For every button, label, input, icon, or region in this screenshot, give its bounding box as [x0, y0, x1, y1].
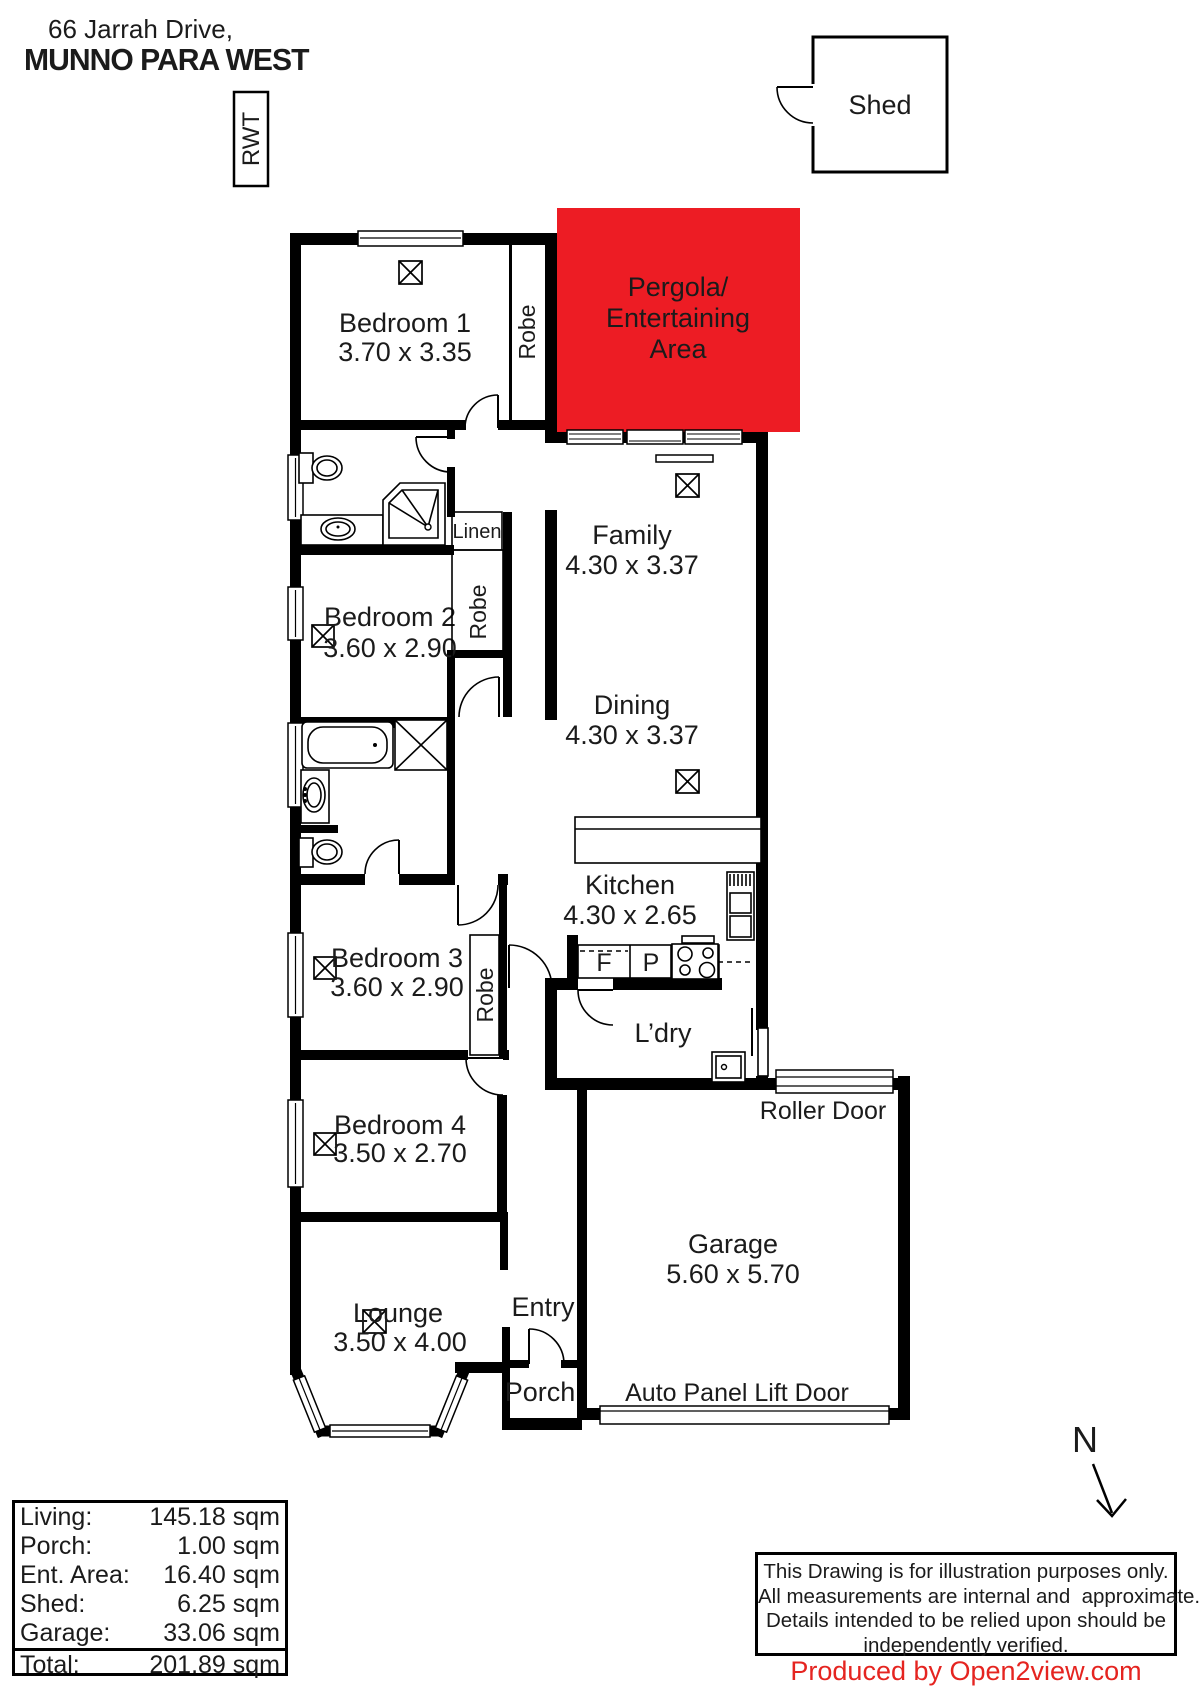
fridge-pantry-unit [727, 872, 754, 940]
laundry-label: L’dry [634, 1018, 692, 1048]
room-label-bedroom-2: Bedroom 2 [324, 602, 456, 632]
robe-label-bed2: Robe [465, 585, 491, 640]
room-label-bedroom-4: Bedroom 4 [334, 1110, 466, 1140]
robe-label-bed3: Robe [472, 968, 498, 1023]
porch-label: Porch [505, 1377, 576, 1407]
linen-label: Linen [453, 521, 502, 543]
area-label: Living: [20, 1503, 92, 1532]
producer-credit: Produced by Open2view.com [755, 1656, 1177, 1687]
pergola-label-1: Pergola/ [628, 272, 729, 302]
ensuite-fixtures [299, 453, 445, 545]
bathroom-fixtures [301, 720, 447, 823]
bedroom4-door [466, 1058, 503, 1095]
disclaimer-box: This Drawing is for illustration purpose… [755, 1552, 1177, 1656]
room-label-family: Family [592, 520, 672, 550]
toilet-cistern [299, 838, 313, 867]
room-dims-bedroom-3: 3.60 x 2.90 [330, 972, 464, 1002]
disclaimer-line: independently verified. [758, 1634, 1174, 1659]
north-arrow: N [1072, 1419, 1126, 1516]
area-value: 6.25 sqm [177, 1590, 280, 1619]
bedroom3-door [458, 885, 498, 925]
table-row: Porch: 1.00 sqm [15, 1532, 285, 1561]
roller-door-label: Roller Door [760, 1097, 886, 1125]
area-value: 33.06 sqm [163, 1619, 280, 1648]
shed-label: Shed [848, 90, 911, 120]
kitchen-bench [575, 817, 761, 863]
fridge-label: F [596, 949, 611, 977]
pantry-label: P [643, 949, 660, 977]
disclaimer-line: Details intended to be relied upon shoul… [758, 1609, 1174, 1634]
area-label: Total: [20, 1651, 80, 1680]
table-row: Ent. Area: 16.40 sqm [15, 1561, 285, 1590]
fan-icon [399, 261, 422, 284]
auto-panel-lift-door [600, 1406, 889, 1424]
floorplan-page: 66 Jarrah Drive, MUNNO PARA WEST Pergola… [0, 0, 1200, 1697]
disclaimer-line: This Drawing is for illustration purpose… [758, 1560, 1174, 1585]
wc-door [365, 840, 399, 874]
area-value: 1.00 sqm [177, 1532, 280, 1561]
disclaimer-line: All measurements are internal and approx… [758, 1585, 1174, 1610]
robe-label-bed1: Robe [514, 305, 540, 360]
pergola-label-2: Entertaining [606, 303, 750, 333]
room-dims-bedroom-1: 3.70 x 3.35 [338, 337, 472, 367]
entry-door [529, 1329, 564, 1364]
sliding-door-leaf [656, 455, 713, 462]
ensuite-door [416, 437, 451, 472]
pergola-label-3: Area [649, 334, 707, 364]
fan-icon [676, 770, 699, 793]
laundry-door [578, 990, 613, 1025]
room-label-garage: Garage [688, 1229, 778, 1259]
rwt-label: RWT [238, 112, 265, 167]
room-dims-bedroom-4: 3.50 x 2.70 [333, 1138, 467, 1168]
area-label: Porch: [20, 1532, 92, 1561]
arrowhead-icon [1097, 1499, 1126, 1516]
corner-shower [383, 483, 445, 545]
room-label-dining: Dining [594, 690, 671, 720]
room-dims-garage: 5.60 x 5.70 [666, 1259, 800, 1289]
wc-fixtures [299, 838, 342, 867]
shed: Shed [777, 37, 947, 172]
room-dims-dining: 4.30 x 3.37 [565, 720, 699, 750]
table-row: Garage: 33.06 sqm [15, 1619, 285, 1648]
auto-door-label: Auto Panel Lift Door [625, 1379, 849, 1407]
room-dims-bedroom-2: 3.60 x 2.90 [323, 633, 457, 663]
floorplan-drawing: Pergola/ Entertaining Area [0, 0, 1200, 1697]
room-dims-family: 4.30 x 3.37 [565, 550, 699, 580]
room-label-bedroom-1: Bedroom 1 [339, 308, 471, 338]
entry-label: Entry [511, 1292, 575, 1322]
area-label: Ent. Area: [20, 1561, 130, 1590]
bay-window [293, 1371, 467, 1437]
pergola-area: Pergola/ Entertaining Area [557, 208, 800, 432]
toilet-cistern [299, 453, 313, 483]
room-label-bedroom-3: Bedroom 3 [331, 943, 463, 973]
area-label: Shed: [20, 1590, 85, 1619]
laundry-trough [712, 1052, 745, 1082]
roller-door [776, 1070, 893, 1093]
stove [672, 936, 718, 979]
bedroom1-door [465, 395, 498, 428]
table-row-total: Total: 201.89 sqm [15, 1648, 285, 1680]
area-value: 201.89 sqm [149, 1651, 280, 1680]
north-label: N [1072, 1419, 1098, 1460]
table-row: Living: 145.18 sqm [15, 1503, 285, 1532]
area-value: 145.18 sqm [149, 1503, 280, 1532]
bathroom-door [459, 677, 499, 717]
shower [395, 720, 447, 770]
table-row: Shed: 6.25 sqm [15, 1590, 285, 1619]
room-label-lounge: Lounge [353, 1298, 443, 1328]
room-dims-kitchen: 4.30 x 2.65 [563, 900, 697, 930]
room-dims-lounge: 3.50 x 4.00 [333, 1327, 467, 1357]
rainwater-tank: RWT [234, 92, 268, 186]
area-summary-table: Living: 145.18 sqm Porch: 1.00 sqm Ent. … [12, 1500, 288, 1676]
area-label: Garage: [20, 1619, 110, 1648]
fan-icon [676, 474, 699, 497]
area-value: 16.40 sqm [163, 1561, 280, 1590]
room-label-kitchen: Kitchen [585, 870, 675, 900]
